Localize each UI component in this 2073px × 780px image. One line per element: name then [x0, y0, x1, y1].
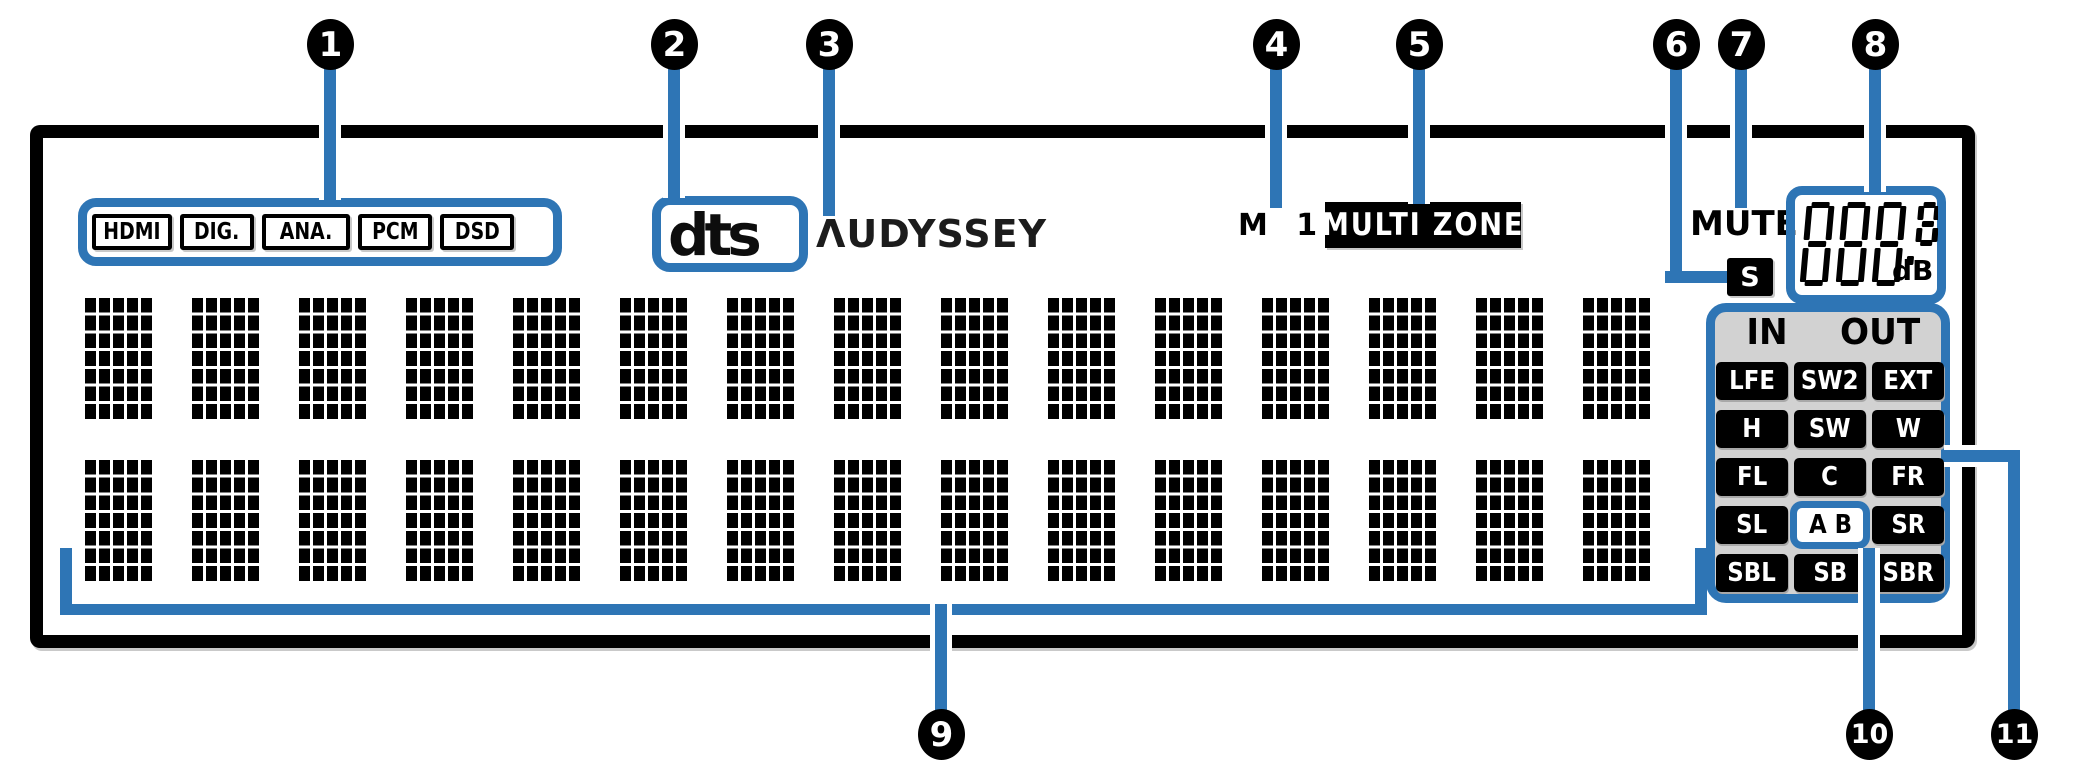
- matrix-char-block: [941, 298, 1008, 422]
- channel-label: SW: [1809, 414, 1851, 444]
- channel-indicator-sbr: SBR: [1872, 554, 1944, 592]
- channel-indicator-ext: EXT: [1872, 362, 1944, 400]
- io-in-label: IN: [1739, 312, 1796, 353]
- receiver-display-diagram: HDMIDIG.ANA.PCMDSD dts ΛUDYSSEY M 1 2 MU…: [0, 0, 2073, 780]
- callout-line-8: [1864, 66, 1886, 192]
- matrix-char-block: [1048, 298, 1115, 422]
- channel-label: FR: [1891, 462, 1924, 492]
- channel-indicator-h: H: [1716, 410, 1788, 448]
- channel-indicator-c: C: [1794, 458, 1866, 496]
- input-indicator-dsd: DSD: [440, 214, 514, 250]
- matrix-char-block: [406, 298, 473, 422]
- channel-label: LFE: [1729, 366, 1775, 396]
- channel-label: SW2: [1801, 366, 1859, 396]
- input-indicator-dig: DIG.: [180, 214, 254, 250]
- io-out-label: OUT: [1840, 312, 1916, 353]
- matrix-char-block: [1262, 460, 1329, 584]
- channel-label: W: [1895, 414, 1920, 444]
- callout-circle-5: 5: [1396, 19, 1443, 70]
- matrix-char-block: [1476, 298, 1543, 422]
- matrix-char-block: [1369, 298, 1436, 422]
- input-indicator-pcm: PCM: [358, 214, 432, 250]
- matrix-char-block: [941, 460, 1008, 584]
- callout-circle-8: 8: [1852, 19, 1899, 70]
- channel-indicator-sw2: SW2: [1794, 362, 1866, 400]
- matrix-char-block: [1262, 298, 1329, 422]
- callout-circle-7: 7: [1718, 19, 1765, 70]
- callout-circle-9: 9: [918, 709, 965, 760]
- matrix-char-block: [727, 460, 794, 584]
- callout-circle-1: 1: [307, 19, 354, 70]
- channel-label: SBR: [1882, 558, 1934, 588]
- sleep-timer-indicator: S: [1727, 258, 1773, 296]
- callout-circle-4: 4: [1253, 19, 1300, 70]
- matrix-char-block: [834, 298, 901, 422]
- callout-line-2: [663, 66, 685, 198]
- matrix-char-block: [1583, 460, 1650, 584]
- callout-line-9-hook-right: [1695, 548, 1707, 615]
- channel-indicator-fl: FL: [1716, 458, 1788, 496]
- matrix-char-block: [299, 298, 366, 422]
- callout-line-9-hook-left: [60, 548, 72, 615]
- matrix-char-block: [406, 460, 473, 584]
- channel-indicator-sb: SB: [1794, 554, 1866, 592]
- indicator-label: HDMI: [103, 219, 160, 245]
- channel-indicator-sbl: SBL: [1716, 554, 1788, 592]
- matrix-char-block: [1048, 460, 1115, 584]
- matrix-char-block: [192, 460, 259, 584]
- dts-logo: dts: [668, 206, 757, 264]
- callout-line-4: [1265, 66, 1287, 208]
- channel-label: SL: [1736, 510, 1767, 540]
- matrix-char-block: [727, 298, 794, 422]
- callout-line-9-drop: [930, 604, 952, 712]
- channel-indicator-sr: SR: [1872, 506, 1944, 544]
- callout-circle-2: 2: [651, 19, 698, 70]
- callout-circle-3: 3: [806, 19, 853, 70]
- channel-label: C: [1822, 462, 1839, 492]
- channel-label: SBL: [1728, 558, 1777, 588]
- volume-unit: dB: [1892, 254, 1933, 287]
- matrix-char-block: [85, 460, 152, 584]
- callout-line-9-bracket: [60, 604, 1706, 615]
- matrix-char-block: [1155, 298, 1222, 422]
- channel-label: EXT: [1884, 366, 1933, 396]
- input-indicator-hdmi: HDMI: [92, 214, 172, 250]
- callout-line-6-elbow: [1665, 271, 1727, 283]
- channel-label: H: [1742, 414, 1761, 444]
- matrix-char-block: [85, 298, 152, 422]
- channel-indicator-ab: A B: [1790, 501, 1870, 549]
- indicator-label: DIG.: [194, 219, 239, 245]
- dts-logo-text: dts: [668, 201, 757, 269]
- callout-line-1: [319, 66, 341, 200]
- indicator-label: DSD: [455, 219, 500, 245]
- callout-circle-6: 6: [1653, 19, 1700, 70]
- channel-label: SB: [1813, 558, 1847, 588]
- input-indicator-ana: ANA.: [262, 214, 350, 250]
- matrix-char-block: [620, 460, 687, 584]
- indicator-label: PCM: [372, 219, 418, 245]
- mute-indicator: MUTE: [1690, 204, 1798, 244]
- channel-indicator-fr: FR: [1872, 458, 1944, 496]
- matrix-char-block: [1369, 460, 1436, 584]
- matrix-char-block: [1155, 460, 1222, 584]
- matrix-char-block: [1476, 460, 1543, 584]
- channel-label: FL: [1737, 462, 1767, 492]
- callout-line-7: [1730, 66, 1752, 208]
- callout-circle-10: 10: [1846, 709, 1893, 760]
- callout-line-11-vertical: [2008, 456, 2020, 712]
- channel-label: A B: [1808, 510, 1851, 540]
- matrix-char-block: [620, 298, 687, 422]
- channel-label: SR: [1891, 510, 1925, 540]
- indicator-label: ANA.: [280, 219, 332, 245]
- callout-line-5: [1408, 66, 1430, 204]
- channel-indicator-lfe: LFE: [1716, 362, 1788, 400]
- matrix-char-block: [299, 460, 366, 584]
- matrix-char-block: [513, 460, 580, 584]
- matrix-char-block: [834, 460, 901, 584]
- callout-line-10: [1858, 548, 1880, 712]
- callout-line-6: [1665, 66, 1687, 283]
- channel-indicator-sw: SW: [1794, 410, 1866, 448]
- audyssey-logo: ΛUDYSSEY: [816, 212, 1047, 256]
- matrix-char-block: [513, 298, 580, 422]
- channel-indicator-w: W: [1872, 410, 1944, 448]
- callout-line-3: [818, 66, 840, 216]
- channel-indicator-sl: SL: [1716, 506, 1788, 544]
- callout-circle-11: 11: [1991, 709, 2038, 760]
- matrix-char-block: [192, 298, 259, 422]
- matrix-char-block: [1583, 298, 1650, 422]
- multi-zone-indicator: MULTI ZONE: [1325, 202, 1521, 248]
